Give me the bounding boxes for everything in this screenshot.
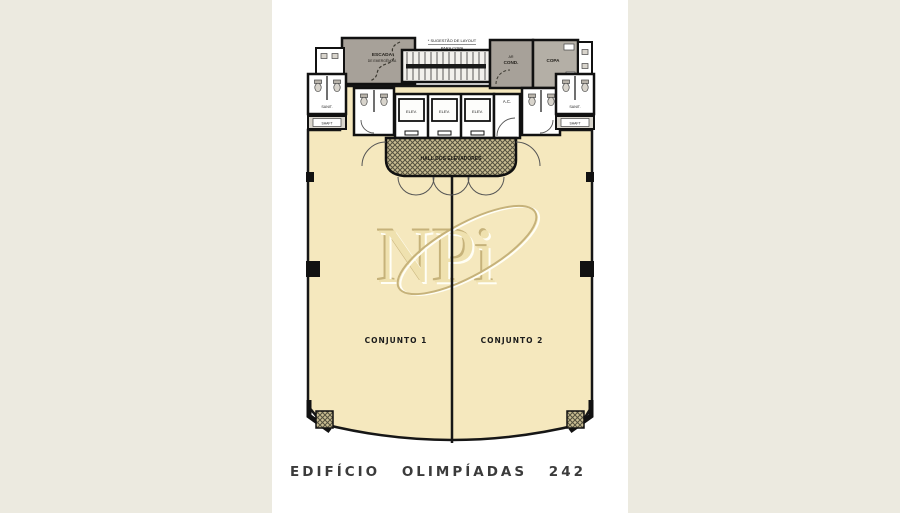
copa-layout-note: * SUGESTÃO DE LAYOUT PARA COPA xyxy=(428,38,477,51)
right-restroom-label: SANIT. xyxy=(569,105,580,109)
right-shaft-box: SHAFT xyxy=(556,116,594,129)
unit1-label: CONJUNTO 1 xyxy=(365,336,428,345)
left-wall-column xyxy=(306,261,320,277)
elevator-3-label: ELEV. xyxy=(472,109,483,114)
ac-room-label-1: AR xyxy=(509,55,514,59)
inner-left-restroom xyxy=(354,88,394,135)
left-wall-tick xyxy=(306,172,314,182)
ac-small-label: A.C. xyxy=(503,99,511,104)
left-shaft-label: SHAFT xyxy=(321,122,332,126)
floorplan-drawing: NPi NPi NPi CONJUNTO 1 CONJUNTO 2 ESCADA… xyxy=(0,0,900,513)
left-restroom-label: SANIT. xyxy=(321,105,332,109)
bottom-left-column xyxy=(316,411,333,428)
copa-room-label: COPA xyxy=(547,58,561,63)
central-staircase xyxy=(402,50,490,82)
unit2-label: CONJUNTO 2 xyxy=(481,336,544,345)
right-wall-tick xyxy=(586,172,594,182)
ac-room-label-2: COND. xyxy=(504,60,519,65)
right-restroom-column: SANIT. xyxy=(556,74,594,114)
bottom-right-column xyxy=(567,411,584,428)
note-line-1: * SUGESTÃO DE LAYOUT xyxy=(428,38,477,43)
elevator-hall-label: HALL DOS ELEVADORES xyxy=(421,156,483,162)
top-left-vestibule xyxy=(316,48,344,74)
ac-small-room: A.C. xyxy=(494,94,520,138)
stair-room-label-2: DE EMERGÊNCIA xyxy=(368,58,397,63)
left-restroom-column: SANIT. xyxy=(308,74,346,114)
elevator-1-label: ELEV. xyxy=(406,109,417,114)
right-wall-column xyxy=(580,261,594,277)
left-shaft-box: SHAFT xyxy=(308,116,346,129)
building-title: EDIFÍCIO OLIMPÍADAS 242 xyxy=(290,463,586,480)
right-shaft-label: SHAFT xyxy=(569,122,580,126)
ac-condenser-room: AR COND. xyxy=(490,40,533,88)
watermark-text: NPi xyxy=(377,212,496,299)
stair-room-label-1: ESCADA xyxy=(372,52,393,58)
note-line-2: PARA COPA xyxy=(441,46,464,51)
elevator-2-label: ELEV. xyxy=(439,109,450,114)
elevator-bank: ELEV. ELEV. ELEV. xyxy=(395,94,494,138)
inner-right-restroom xyxy=(522,88,560,135)
elevator-hall: HALL DOS ELEVADORES xyxy=(386,138,516,176)
